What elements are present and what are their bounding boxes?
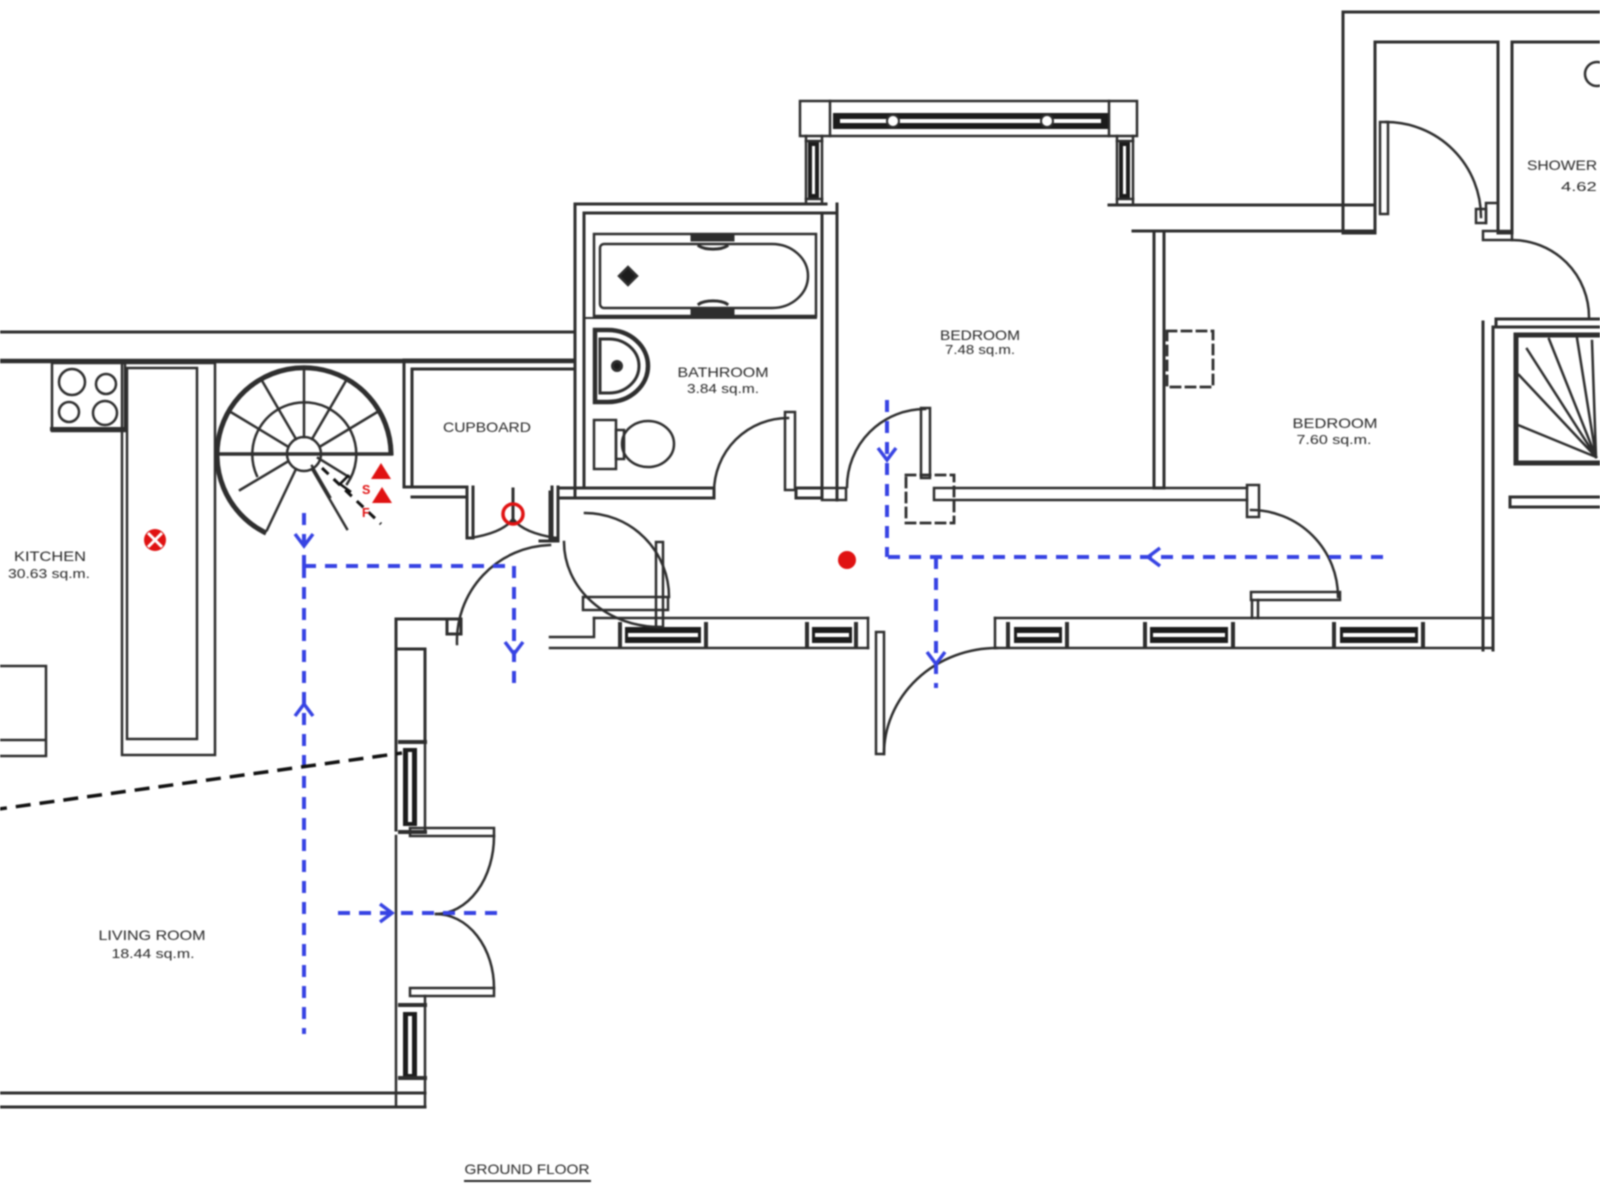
svg-text:S: S [362, 483, 370, 497]
svg-text:BEDROOM: BEDROOM [1293, 415, 1378, 431]
svg-text:KITCHEN: KITCHEN [14, 548, 86, 564]
svg-text:F: F [362, 506, 370, 520]
svg-text:3.84 sq.m.: 3.84 sq.m. [687, 382, 759, 396]
svg-text:LIVING ROOM: LIVING ROOM [99, 927, 206, 943]
svg-text:30.63 sq.m.: 30.63 sq.m. [8, 567, 90, 581]
svg-text:7.48 sq.m.: 7.48 sq.m. [945, 343, 1015, 357]
svg-text:BATHROOM: BATHROOM [678, 364, 769, 380]
svg-text:BEDROOM: BEDROOM [940, 327, 1020, 343]
svg-text:SHOWER ROO: SHOWER ROO [1527, 157, 1600, 173]
svg-text:CUPBOARD: CUPBOARD [443, 419, 531, 435]
svg-text:GROUND FLOOR: GROUND FLOOR [465, 1161, 590, 1177]
svg-text:7.60 sq.m.: 7.60 sq.m. [1297, 433, 1372, 447]
svg-text:4.62 s: 4.62 s [1561, 180, 1600, 194]
svg-text:18.44 sq.m.: 18.44 sq.m. [112, 947, 195, 961]
